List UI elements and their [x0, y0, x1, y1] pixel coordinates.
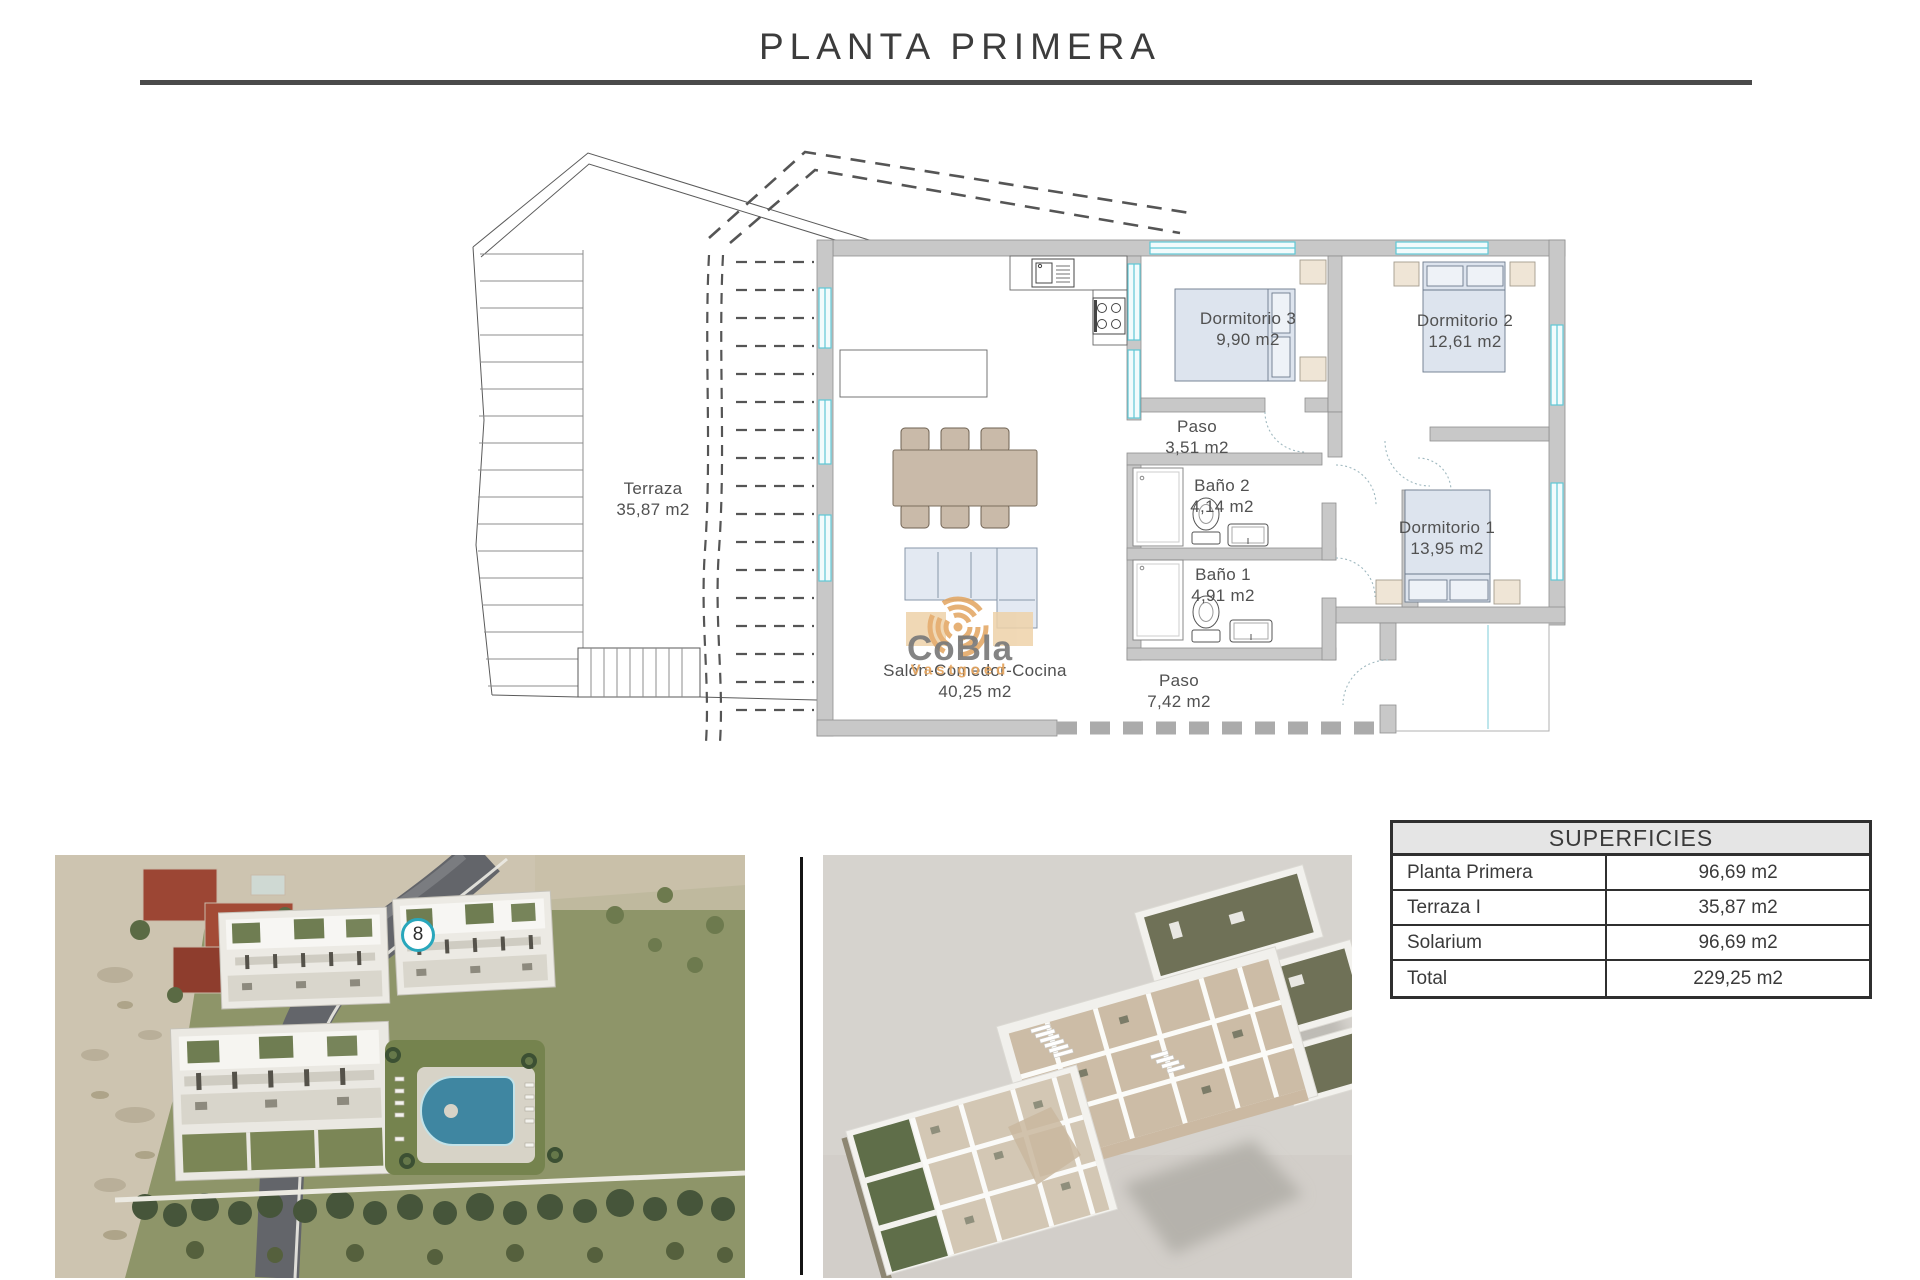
kitchen-counter [840, 256, 1127, 397]
superficies-table-header: SUPERFICIES [1393, 823, 1869, 856]
room-label-paso-1: Paso3,51 m2 [1165, 416, 1229, 458]
table-row: Terraza I 35,87 m2 [1393, 891, 1869, 926]
pool-area [385, 1040, 563, 1175]
dining-table [893, 428, 1037, 528]
pergola-dashed-outline [709, 152, 1190, 243]
table-row: Planta Primera 96,69 m2 [1393, 856, 1869, 891]
row-value: 229,25 m2 [1607, 961, 1869, 996]
table-row: Total 229,25 m2 [1393, 961, 1869, 996]
row-label: Planta Primera [1393, 856, 1607, 889]
louver-dashed-band [704, 255, 814, 742]
table-row: Solarium 96,69 m2 [1393, 926, 1869, 961]
superficies-table: SUPERFICIES Planta Primera 96,69 m2 Terr… [1390, 820, 1872, 999]
aerial-site-photo [55, 855, 745, 1278]
entry-steps [578, 648, 700, 697]
page-title: PLANTA PRIMERA [0, 26, 1920, 68]
isometric-illustration [823, 855, 1352, 1278]
isometric-render [823, 855, 1352, 1278]
watermark-sub: Vastgoed [911, 662, 1010, 679]
row-value: 35,87 m2 [1607, 891, 1869, 924]
row-label: Solarium [1393, 926, 1607, 959]
sink-icon [1230, 620, 1272, 642]
room-label-bano1: Baño 14,91 m2 [1191, 564, 1255, 606]
sink-icon [1228, 524, 1268, 546]
row-label: Total [1393, 961, 1607, 996]
room-label-dormitorio2: Dormitorio 212,61 m2 [1417, 310, 1513, 352]
row-label: Terraza I [1393, 891, 1607, 924]
townhouse-block-upper-left [218, 907, 389, 1009]
unit-number-badge: 8 [401, 918, 435, 952]
stove-icon [1093, 298, 1125, 334]
title-rule [140, 80, 1752, 85]
brochure-page: PLANTA PRIMERA [0, 0, 1920, 1280]
room-label-paso-2: Paso7,42 m2 [1147, 670, 1211, 712]
kitchen-sink-icon [1032, 259, 1074, 287]
photo-separator [800, 857, 803, 1275]
porch-lines [1343, 623, 1549, 731]
terrace-steps [477, 250, 583, 694]
room-label-dormitorio1: Dormitorio 113,95 m2 [1399, 517, 1495, 559]
row-value: 96,69 m2 [1607, 926, 1869, 959]
row-value: 96,69 m2 [1607, 856, 1869, 889]
townhouse-block-lower [170, 1021, 393, 1181]
room-label-bano2: Baño 24,14 m2 [1190, 475, 1254, 517]
room-label-terraza: Terraza35,87 m2 [616, 478, 689, 520]
aerial-illustration [55, 855, 745, 1278]
swimming-pool [421, 1077, 514, 1145]
room-label-dormitorio3: Dormitorio 39,90 m2 [1200, 308, 1296, 350]
